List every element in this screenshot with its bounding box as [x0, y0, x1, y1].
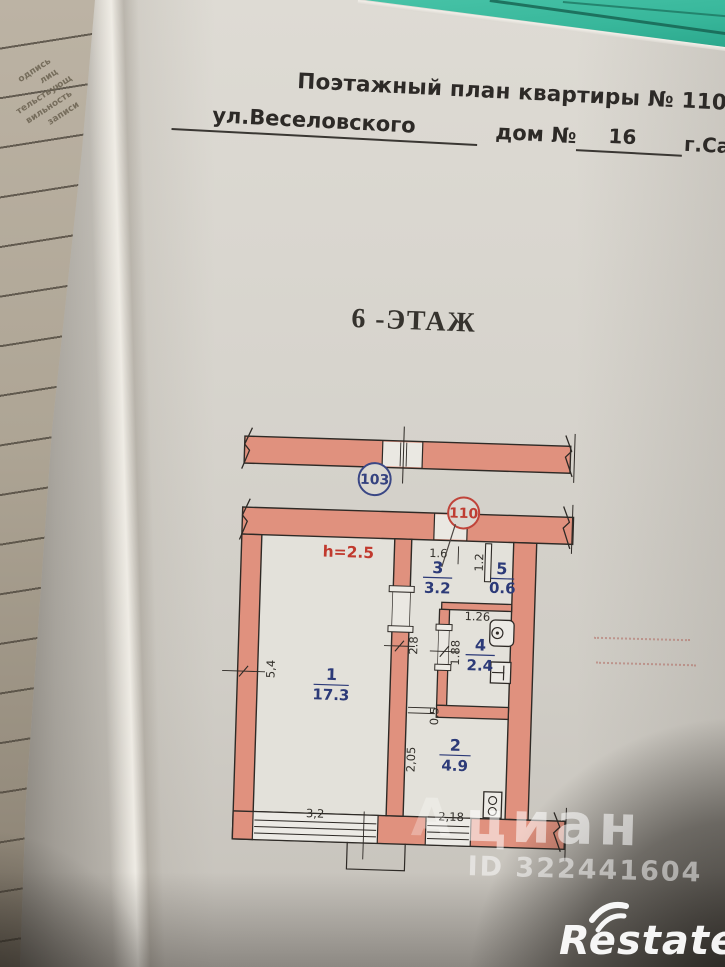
- dim-hall-side: 2.8: [406, 636, 421, 655]
- toilet-icon: [489, 620, 514, 647]
- balcony: [346, 842, 405, 870]
- restate-logo-text: Restate: [559, 918, 725, 964]
- dim-kitchen-left: 2,05: [403, 746, 418, 772]
- dim-bath-left: 1.88: [448, 640, 463, 666]
- door-room1: [392, 589, 410, 630]
- corridor-wall-strip-103: [242, 422, 576, 488]
- dim-hall-top: 1.6: [429, 546, 448, 561]
- room-2-number: 2: [449, 736, 461, 755]
- floor-heading: 6 -ЭТАЖ: [351, 303, 477, 340]
- ceiling-height-note: h=2.5: [322, 543, 374, 563]
- dim-passage: 0.5: [427, 707, 442, 726]
- house-number-label: дом №: [495, 120, 577, 151]
- room-2-area: 4.9: [441, 756, 468, 775]
- room-3-area: 3.2: [424, 579, 451, 598]
- watermark-partial-glyph: А: [410, 788, 452, 849]
- room-4-number: 4: [475, 635, 487, 654]
- dim-closet-left: 1.2: [472, 553, 487, 572]
- restate-logo: Restate: [554, 899, 725, 965]
- page-curl-highlight: [86, 0, 166, 967]
- room-4-area: 2.4: [466, 656, 493, 675]
- dim-room1-bottom: 3,2: [306, 806, 325, 821]
- dim-room1-left: 5,4: [263, 660, 278, 679]
- room-5-area: 0.6: [489, 579, 516, 598]
- watermark-id: ID 322441604: [467, 851, 703, 889]
- room-1-number: 1: [326, 665, 338, 684]
- unit-circle-103: 103: [358, 463, 391, 496]
- photo-floor-plan-document: одпись лиц тельствующ вильность записи П…: [0, 0, 725, 967]
- room-5-number: 5: [496, 559, 508, 578]
- house-number-value: 16: [576, 122, 683, 156]
- room-1-area: 17.3: [312, 685, 350, 704]
- unit-number-103: 103: [360, 472, 390, 489]
- room-3-number: 3: [432, 558, 444, 577]
- watermark-brand: циан: [464, 790, 643, 860]
- watermark: А циан: [410, 788, 643, 859]
- wall-bath-bottom: [436, 705, 508, 719]
- unit-number-110: 110: [449, 506, 479, 523]
- notebook-margin-text: одпись лиц тельствующ вильность записи: [0, 56, 82, 141]
- dim-bath-top: 1.26: [464, 609, 490, 624]
